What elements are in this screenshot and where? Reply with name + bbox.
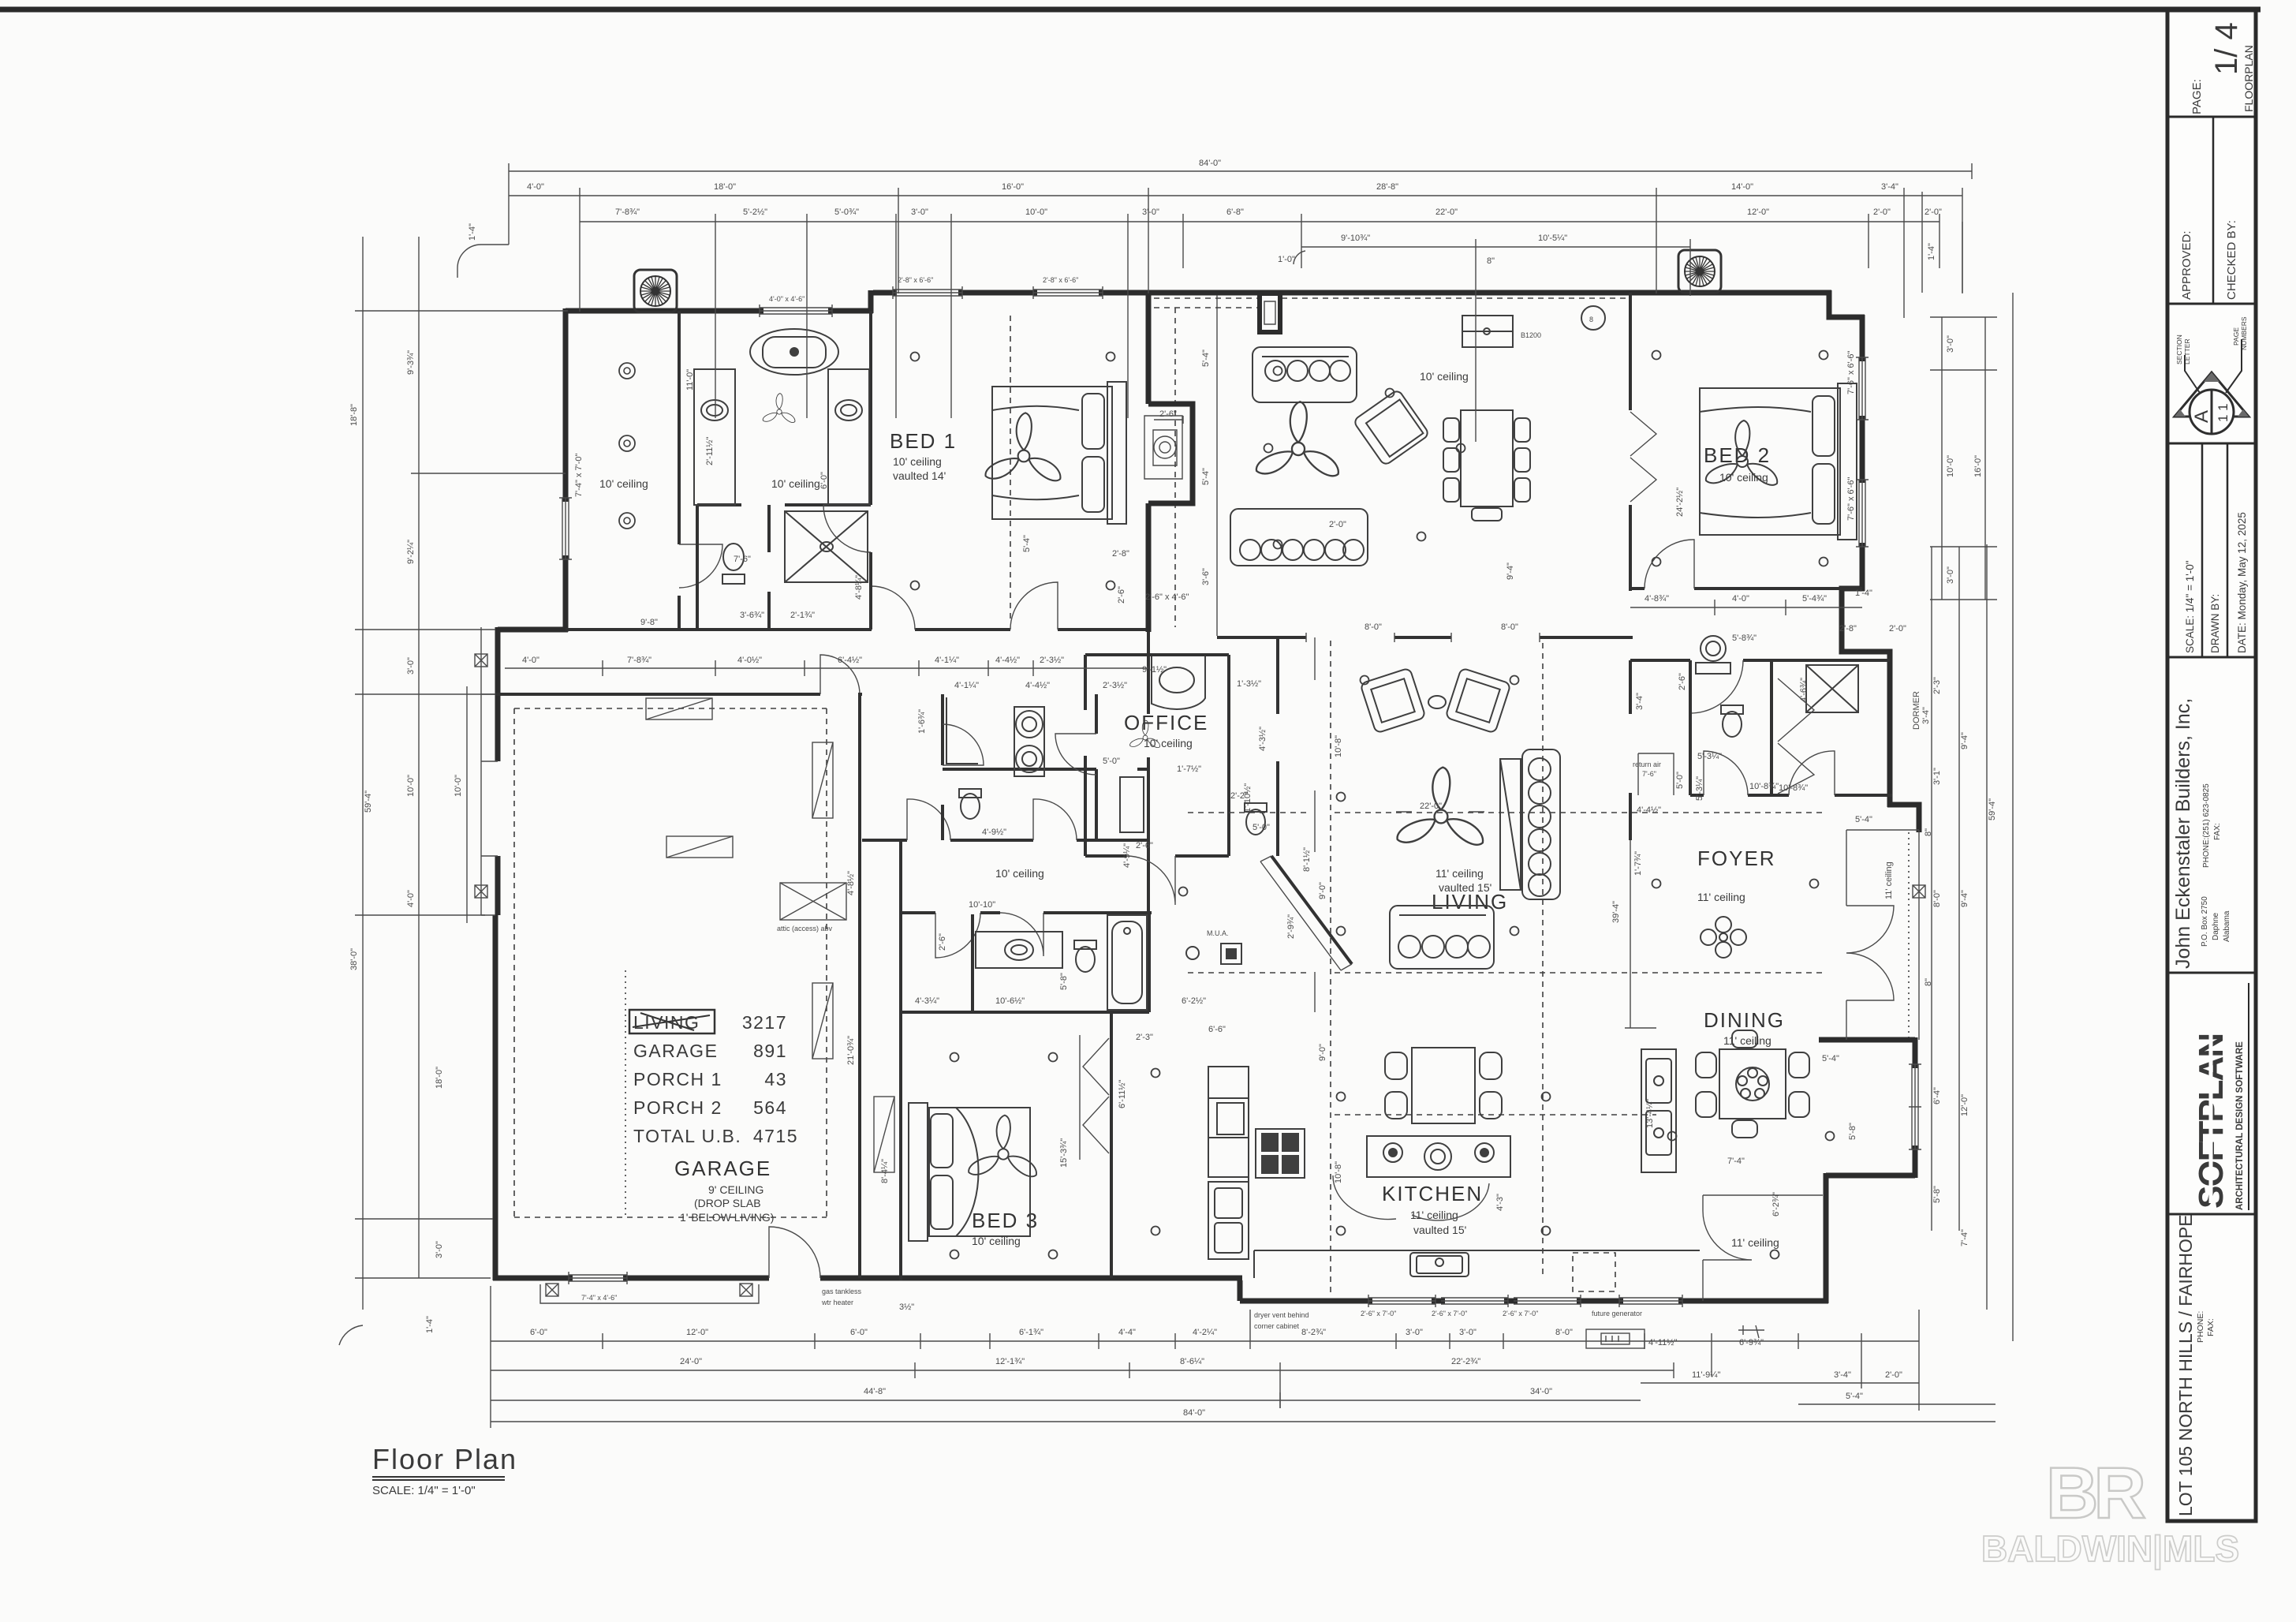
svg-text:3'-6¾": 3'-6¾" — [740, 611, 764, 620]
svg-text:4'-0": 4'-0" — [527, 182, 544, 192]
svg-text:corner cabinet: corner cabinet — [1254, 1322, 1300, 1330]
svg-text:2'-0": 2'-0" — [1885, 1370, 1902, 1380]
svg-text:7'-8¾": 7'-8¾" — [627, 656, 651, 665]
svg-text:7'-6" x 6'-6": 7'-6" x 6'-6" — [1846, 350, 1856, 394]
svg-text:A: A — [2191, 410, 2212, 423]
svg-text:6'-8": 6'-8" — [1226, 207, 1244, 217]
svg-text:5'-8": 5'-8" — [1059, 973, 1069, 990]
svg-text:5'-4": 5'-4" — [1022, 535, 1032, 552]
svg-text:5'-4": 5'-4" — [1201, 468, 1211, 485]
svg-text:2'-3½": 2'-3½" — [1040, 656, 1064, 665]
svg-text:4'-8¾": 4'-8¾" — [1645, 594, 1669, 604]
svg-text:PHONE:: PHONE: — [2196, 1311, 2205, 1343]
svg-text:2'-0": 2'-0" — [1329, 520, 1346, 529]
svg-text:4'-6¾": 4'-6¾" — [1799, 678, 1809, 702]
svg-text:7'-4": 7'-4" — [1727, 1157, 1745, 1166]
svg-text:6'-4½": 6'-4½" — [838, 656, 862, 665]
svg-text:11'-0": 11'-0" — [685, 369, 695, 391]
svg-text:attic (access) abv: attic (access) abv — [777, 925, 833, 932]
svg-text:6'-9¾": 6'-9¾" — [1739, 1338, 1764, 1347]
svg-text:5'-0": 5'-0" — [1103, 757, 1120, 766]
svg-text:1/ 4: 1/ 4 — [2209, 22, 2244, 75]
svg-text:11' ceiling: 11' ceiling — [1723, 1034, 1771, 1047]
svg-text:10'-0": 10'-0" — [406, 775, 416, 797]
svg-text:2'-6" x 7'-0": 2'-6" x 7'-0" — [1432, 1310, 1467, 1317]
svg-text:9'-0": 9'-0" — [1318, 882, 1327, 899]
svg-text:PORCH 1: PORCH 1 — [633, 1069, 722, 1089]
svg-text:PAGE:: PAGE: — [2190, 79, 2204, 114]
svg-text:3'-0": 3'-0" — [1406, 1328, 1423, 1337]
svg-text:SECTION: SECTION — [2175, 334, 2183, 364]
svg-text:10'-8¾": 10'-8¾" — [1749, 782, 1779, 791]
svg-text:4'-2¼": 4'-2¼" — [1193, 1328, 1217, 1337]
svg-text:4'-4½": 4'-4½" — [1637, 805, 1661, 815]
svg-text:9'-8": 9'-8" — [640, 618, 658, 627]
svg-text:BR: BR — [2046, 1453, 2145, 1534]
svg-text:TOTAL U.B.: TOTAL U.B. — [633, 1126, 741, 1146]
svg-text:12'-0": 12'-0" — [686, 1328, 708, 1337]
svg-text:2'-3": 2'-3" — [1136, 1033, 1153, 1042]
svg-text:8'-0": 8'-0" — [1365, 622, 1382, 632]
svg-text:12'-0": 12'-0" — [1747, 207, 1769, 217]
svg-text:1'-0": 1'-0" — [1278, 255, 1295, 264]
svg-text:vaulted 15': vaulted 15' — [1439, 881, 1491, 894]
svg-text:4'-9¼": 4'-9¼" — [1122, 843, 1132, 868]
svg-text:10'-0": 10'-0" — [1946, 455, 1955, 477]
svg-text:8'-2¾": 8'-2¾" — [1301, 1328, 1326, 1337]
svg-text:13'-4¼": 13'-4¼" — [1645, 1099, 1655, 1128]
svg-text:1'-7¾": 1'-7¾" — [1633, 851, 1643, 876]
svg-text:6'-2½": 6'-2½" — [1182, 996, 1206, 1006]
svg-text:2'-6" x 7'-0": 2'-6" x 7'-0" — [1361, 1310, 1396, 1317]
svg-text:10'-8¾": 10'-8¾" — [1779, 783, 1808, 793]
svg-text:1 1: 1 1 — [2216, 403, 2231, 422]
svg-text:8'-0": 8'-0" — [1932, 890, 1942, 907]
svg-text:6'-0": 6'-0" — [530, 1328, 547, 1337]
svg-text:5'-0": 5'-0" — [1253, 823, 1270, 832]
svg-text:4'-11½": 4'-11½" — [1648, 1338, 1677, 1347]
svg-text:22'-0": 22'-0" — [1420, 802, 1442, 811]
svg-text:1'-4": 1'-4" — [425, 1316, 435, 1333]
svg-text:LIVING: LIVING — [633, 1012, 700, 1033]
svg-text:vaulted 14': vaulted 14' — [893, 469, 946, 482]
svg-text:4'-0": 4'-0" — [406, 890, 416, 907]
svg-text:return air: return air — [1633, 761, 1661, 768]
svg-text:16'-0": 16'-0" — [1002, 182, 1024, 192]
svg-text:10'-6½": 10'-6½" — [995, 996, 1025, 1006]
svg-text:11' ceiling: 11' ceiling — [1731, 1236, 1779, 1249]
svg-text:3'-0": 3'-0" — [1142, 207, 1159, 217]
svg-text:4'-0½": 4'-0½" — [737, 656, 762, 665]
svg-text:6'-0": 6'-0" — [850, 1328, 868, 1337]
svg-text:1' BELOW LIVING): 1' BELOW LIVING) — [680, 1211, 774, 1224]
svg-text:4'-9½": 4'-9½" — [982, 828, 1006, 837]
svg-text:M.U.A.: M.U.A. — [1207, 929, 1229, 937]
svg-text:18'-0": 18'-0" — [714, 182, 736, 192]
svg-text:28'-8": 28'-8" — [1376, 182, 1398, 192]
svg-text:9'-4": 9'-4" — [1960, 732, 1969, 749]
svg-text:3'-4": 3'-4" — [1881, 182, 1898, 192]
svg-text:8'-0": 8'-0" — [1501, 622, 1518, 632]
svg-text:SCALE: 1/4" = 1'-0": SCALE: 1/4" = 1'-0" — [2184, 560, 2196, 653]
svg-text:10' ceiling: 10' ceiling — [599, 477, 648, 490]
svg-text:Alabama: Alabama — [2223, 910, 2231, 942]
svg-text:9'-10¾": 9'-10¾" — [1341, 234, 1370, 243]
svg-text:2'-9¾": 2'-9¾" — [1286, 914, 1296, 939]
svg-text:5'-8": 5'-8" — [1932, 1186, 1942, 1203]
svg-text:9'-4": 9'-4" — [1506, 562, 1515, 580]
svg-text:1'-6¾": 1'-6¾" — [917, 709, 927, 734]
svg-text:4'-4½": 4'-4½" — [1025, 681, 1050, 690]
svg-text:SCALE: 1/4" = 1'-0": SCALE: 1/4" = 1'-0" — [372, 1484, 476, 1497]
svg-text:1'-3½": 1'-3½" — [1237, 679, 1261, 689]
svg-text:2'-6" x 7'-0": 2'-6" x 7'-0" — [1503, 1310, 1538, 1317]
svg-text:22'-2¾": 22'-2¾" — [1451, 1357, 1480, 1366]
svg-text:4'-3½": 4'-3½" — [1258, 727, 1267, 751]
svg-text:DINING: DINING — [1704, 1008, 1785, 1032]
svg-text:2'-8": 2'-8" — [1112, 549, 1129, 559]
svg-text:3'-4": 3'-4" — [1834, 1370, 1851, 1380]
svg-text:2'-8" x 6'-6": 2'-8" x 6'-6" — [1043, 276, 1078, 284]
svg-text:(DROP SLAB: (DROP SLAB — [694, 1197, 761, 1209]
svg-text:P.O. Box 2750: P.O. Box 2750 — [2201, 896, 2209, 947]
svg-text:3'-0": 3'-0" — [406, 657, 416, 675]
svg-text:14'-0": 14'-0" — [1731, 182, 1753, 192]
svg-text:39'-4": 39'-4" — [1611, 901, 1621, 923]
svg-text:11' ceiling: 11' ceiling — [1697, 891, 1745, 903]
svg-text:43: 43 — [764, 1069, 787, 1089]
svg-text:9'-0": 9'-0" — [1318, 1044, 1327, 1061]
svg-text:7'-4" x 7'-0": 7'-4" x 7'-0" — [574, 453, 584, 497]
svg-text:9' CEILING: 9' CEILING — [708, 1183, 763, 1196]
svg-text:8": 8" — [1924, 828, 1933, 836]
svg-text:564: 564 — [753, 1097, 787, 1118]
svg-text:6'-11½": 6'-11½" — [1118, 1080, 1127, 1108]
svg-text:8": 8" — [1487, 256, 1495, 266]
svg-text:2'-3½": 2'-3½" — [1103, 681, 1127, 690]
svg-text:2'-0": 2'-0" — [1873, 207, 1891, 217]
svg-text:DORMER: DORMER — [1912, 691, 1921, 730]
svg-text:2'-6": 2'-6" — [1159, 409, 1177, 419]
svg-text:CHECKED BY:: CHECKED BY: — [2225, 220, 2238, 300]
svg-text:4715: 4715 — [753, 1126, 798, 1146]
svg-text:11' ceiling: 11' ceiling — [1435, 867, 1484, 880]
svg-text:3'-0": 3'-0" — [1946, 566, 1955, 584]
svg-text:DRAWN BY:: DRAWN BY: — [2209, 594, 2221, 653]
svg-text:4'-4½": 4'-4½" — [995, 656, 1020, 665]
svg-text:2'-6": 2'-6" — [938, 933, 947, 951]
svg-text:FLOORPLAN: FLOORPLAN — [2242, 45, 2255, 112]
svg-text:3½": 3½" — [899, 1302, 914, 1312]
svg-text:8: 8 — [1589, 316, 1593, 323]
svg-text:7'-6": 7'-6" — [734, 555, 751, 564]
svg-text:FAX:: FAX: — [2206, 1318, 2216, 1336]
svg-text:APPROVED:: APPROVED: — [2180, 230, 2193, 300]
svg-text:2'-6": 2'-6" — [1117, 586, 1126, 604]
svg-text:BED 1: BED 1 — [890, 429, 957, 453]
svg-text:34'-0": 34'-0" — [1530, 1387, 1552, 1396]
svg-text:59'-4": 59'-4" — [364, 790, 373, 813]
svg-text:10'-8": 10'-8" — [1334, 735, 1343, 757]
svg-text:11' ceiling: 11' ceiling — [1884, 861, 1894, 899]
svg-text:21'-0¾": 21'-0¾" — [846, 1036, 856, 1065]
svg-text:LOT 105 NORTH HILLS / FAIRHOPE: LOT 105 NORTH HILLS / FAIRHOPE — [2175, 1214, 2196, 1516]
svg-text:18'-8": 18'-8" — [349, 404, 359, 426]
svg-text:4'-1¼": 4'-1¼" — [954, 681, 979, 690]
svg-text:KITCHEN: KITCHEN — [1382, 1182, 1483, 1205]
svg-text:5'-3¼": 5'-3¼" — [1695, 776, 1704, 801]
svg-text:4'-3": 4'-3" — [1495, 1194, 1505, 1211]
svg-text:1'-7½": 1'-7½" — [1177, 764, 1201, 774]
svg-text:18'-0": 18'-0" — [435, 1067, 444, 1089]
svg-text:10' ceiling: 10' ceiling — [995, 867, 1044, 880]
svg-text:7'-4": 7'-4" — [1960, 1229, 1969, 1246]
svg-text:8": 8" — [1924, 978, 1933, 986]
svg-text:ARCHITECTURAL DESIGN SOFTWARE: ARCHITECTURAL DESIGN SOFTWARE — [2235, 1041, 2245, 1210]
svg-text:3'-0": 3'-0" — [911, 207, 928, 217]
svg-text:84'-0": 84'-0" — [1183, 1408, 1205, 1418]
svg-text:6'-0": 6'-0" — [819, 472, 829, 489]
svg-text:5'-0": 5'-0" — [1675, 772, 1685, 789]
svg-text:GARAGE: GARAGE — [633, 1041, 718, 1061]
svg-text:gas tankless: gas tankless — [822, 1288, 862, 1295]
svg-text:1'-4": 1'-4" — [1855, 589, 1872, 598]
svg-text:4'-4": 4'-4" — [1118, 1328, 1136, 1337]
svg-text:BALDWIN|MLS: BALDWIN|MLS — [1981, 1528, 2239, 1569]
svg-text:1'-4": 1'-4" — [1927, 243, 1936, 260]
svg-text:PAGE: PAGE — [2232, 327, 2240, 346]
svg-text:22'-0": 22'-0" — [1435, 207, 1458, 217]
svg-text:3'-1": 3'-1" — [1932, 768, 1942, 785]
svg-text:10'-0": 10'-0" — [454, 775, 463, 797]
svg-text:6'-1¾": 6'-1¾" — [1019, 1328, 1043, 1337]
svg-text:2'-6": 2'-6" — [1678, 673, 1687, 690]
svg-text:8'-6¼": 8'-6¼" — [1180, 1357, 1204, 1366]
svg-text:4'-8½": 4'-8½" — [846, 871, 856, 895]
svg-text:GARAGE: GARAGE — [674, 1157, 771, 1180]
svg-text:vaulted 15': vaulted 15' — [1413, 1224, 1466, 1236]
svg-text:44'-8": 44'-8" — [864, 1387, 886, 1396]
svg-text:2'-0": 2'-0" — [1889, 624, 1906, 633]
svg-text:PHONE:(251) 623-0825: PHONE:(251) 623-0825 — [2202, 783, 2211, 868]
svg-text:15'-3¾": 15'-3¾" — [1059, 1138, 1069, 1168]
svg-text:3'-4": 3'-4" — [1635, 693, 1645, 710]
svg-text:9'-1½": 9'-1½" — [1142, 665, 1167, 675]
svg-text:5'-3¼": 5'-3¼" — [1697, 752, 1722, 761]
svg-text:2'-11½": 2'-11½" — [705, 437, 715, 465]
svg-text:1'-4": 1'-4" — [468, 223, 477, 241]
svg-text:6'-4": 6'-4" — [1932, 1087, 1942, 1104]
svg-text:2'-2": 2'-2" — [1230, 791, 1248, 801]
svg-text:5'-0¾": 5'-0¾" — [834, 207, 859, 217]
svg-text:FAX:: FAX: — [2213, 823, 2222, 840]
svg-text:3'-0": 3'-0" — [1459, 1328, 1477, 1337]
svg-text:16'-0": 16'-0" — [1973, 455, 1983, 477]
svg-text:7'-8¾": 7'-8¾" — [615, 207, 640, 217]
svg-text:10' ceiling: 10' ceiling — [771, 477, 820, 490]
svg-text:7'-4" x 4'-6": 7'-4" x 4'-6" — [581, 1294, 617, 1302]
svg-text:2'-3": 2'-3" — [1932, 677, 1942, 694]
svg-text:5'-8¾": 5'-8¾" — [1732, 633, 1757, 643]
svg-text:5'-4": 5'-4" — [1855, 815, 1872, 824]
svg-text:B1200: B1200 — [1521, 331, 1541, 339]
svg-text:4'-3¼": 4'-3¼" — [915, 996, 939, 1006]
svg-text:2'-8" x 6'-6": 2'-8" x 6'-6" — [898, 276, 933, 284]
svg-text:3'-6": 3'-6" — [1201, 568, 1211, 585]
svg-text:24'-2½": 24'-2½" — [1675, 488, 1685, 517]
svg-text:5'-4": 5'-4" — [1201, 349, 1211, 367]
svg-text:PORCH 2: PORCH 2 — [633, 1097, 722, 1118]
svg-text:4'-0": 4'-0" — [522, 656, 539, 665]
svg-text:10'-10": 10'-10" — [969, 900, 995, 910]
svg-text:10'-8": 10'-8" — [1334, 1161, 1343, 1183]
svg-text:wtr heater: wtr heater — [821, 1299, 853, 1306]
svg-text:FOYER: FOYER — [1697, 847, 1776, 870]
svg-text:John Eckenstaler Builders, Inc: John Eckenstaler Builders, Inc, — [2172, 698, 2194, 969]
svg-text:9'-2¼": 9'-2¼" — [406, 540, 416, 564]
svg-text:5'-4": 5'-4" — [1822, 1054, 1839, 1063]
svg-text:12'-0": 12'-0" — [1960, 1094, 1969, 1116]
svg-text:11'-9¼": 11'-9¼" — [1692, 1370, 1720, 1380]
svg-text:7'-6": 7'-6" — [1642, 770, 1656, 778]
svg-text:Floor Plan: Floor Plan — [372, 1443, 517, 1475]
svg-text:891: 891 — [753, 1041, 787, 1061]
svg-text:3'-0": 3'-0" — [1946, 335, 1955, 353]
svg-text:38'-0": 38'-0" — [349, 948, 359, 970]
svg-text:9'-3¾": 9'-3¾" — [406, 350, 416, 375]
svg-text:10'-5¼": 10'-5¼" — [1538, 234, 1567, 243]
svg-text:84'-0": 84'-0" — [1199, 159, 1221, 168]
svg-text:24'-0": 24'-0" — [680, 1357, 702, 1366]
svg-text:8'-1½": 8'-1½" — [1302, 847, 1312, 872]
svg-text:4'-0" x 4'-6": 4'-0" x 4'-6" — [769, 295, 805, 303]
svg-text:6'-2¾": 6'-2¾" — [1771, 1192, 1781, 1216]
svg-text:DATE: Monday, May 12, 2025: DATE: Monday, May 12, 2025 — [2236, 512, 2248, 653]
svg-text:2'-0": 2'-0" — [1925, 207, 1942, 217]
svg-text:10' ceiling: 10' ceiling — [1719, 471, 1768, 484]
svg-text:10' ceiling: 10' ceiling — [1420, 370, 1469, 383]
svg-text:59'-4": 59'-4" — [1988, 798, 1997, 820]
svg-text:7'-6" x 6'-6": 7'-6" x 6'-6" — [1846, 477, 1856, 521]
svg-text:4'-0": 4'-0" — [1732, 594, 1749, 604]
svg-text:2'-6" x 4'-6": 2'-6" x 4'-6" — [1145, 592, 1189, 602]
svg-text:5'-4¾": 5'-4¾" — [1802, 594, 1827, 604]
svg-text:6'-6": 6'-6" — [1208, 1025, 1226, 1034]
svg-text:4'-8¼": 4'-8¼" — [854, 575, 864, 600]
svg-text:dryer vent behind: dryer vent behind — [1254, 1311, 1309, 1319]
svg-text:12'-1¾": 12'-1¾" — [995, 1357, 1025, 1366]
svg-text:5'-8": 5'-8" — [1848, 1123, 1857, 1140]
svg-text:3'-4": 3'-4" — [1921, 707, 1931, 724]
svg-text:5'-4": 5'-4" — [1846, 1392, 1863, 1401]
svg-text:8'-0": 8'-0" — [1555, 1328, 1573, 1337]
svg-text:9'-4": 9'-4" — [1960, 890, 1969, 907]
svg-text:8'-4¼": 8'-4¼" — [880, 1159, 890, 1183]
svg-text:BED 3: BED 3 — [972, 1209, 1039, 1232]
svg-text:2'-1¾": 2'-1¾" — [790, 611, 815, 620]
svg-text:3'-0": 3'-0" — [435, 1241, 444, 1258]
svg-text:future generator: future generator — [1592, 1310, 1642, 1317]
svg-text:5'-2½": 5'-2½" — [743, 207, 767, 217]
svg-text:10' ceiling: 10' ceiling — [893, 455, 942, 468]
svg-text:4'-1¼": 4'-1¼" — [935, 656, 959, 665]
svg-text:2'-6": 2'-6" — [1136, 841, 1153, 850]
svg-text:3217: 3217 — [742, 1012, 787, 1033]
svg-text:Daphne: Daphne — [2212, 913, 2220, 940]
svg-text:10'-0": 10'-0" — [1025, 207, 1047, 217]
svg-text:OFFICE: OFFICE — [1124, 711, 1208, 734]
svg-text:2'-8": 2'-8" — [1839, 624, 1857, 633]
